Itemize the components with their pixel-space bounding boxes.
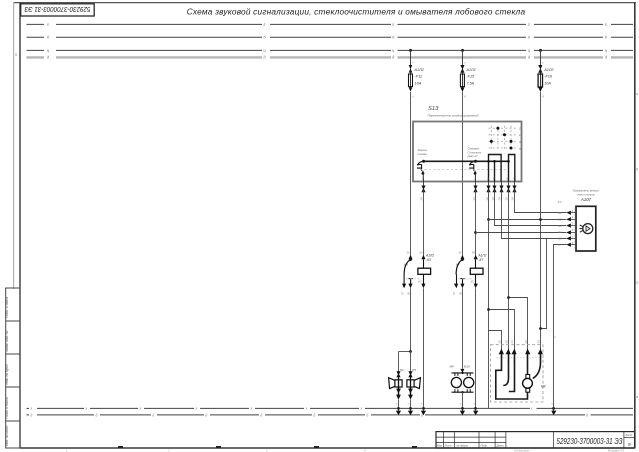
svg-text:Э1: Э1 (558, 230, 562, 234)
svg-text:г: г (47, 23, 49, 27)
svg-text:сигнал: сигнал (418, 152, 428, 156)
svg-text:М10: М10 (464, 364, 470, 368)
svg-text:30: 30 (458, 251, 461, 255)
svg-text:-К7: -К7 (478, 258, 483, 262)
svg-text:2: 2 (571, 215, 574, 219)
svg-text:88: 88 (459, 292, 463, 295)
svg-text:№ докум.: № докум. (457, 443, 469, 447)
svg-text:х: х (85, 407, 88, 411)
svg-text:5: 5 (15, 53, 17, 57)
svg-text:А1Л2: А1Л2 (414, 68, 425, 72)
svg-text:Х7: Х7 (557, 201, 562, 205)
svg-text:х: х (30, 407, 33, 411)
svg-text:(авт-2): (авт-2) (468, 154, 478, 158)
svg-text:-F11: -F11 (415, 75, 423, 79)
svg-text:Подп.: Подп. (481, 443, 488, 447)
svg-text:Дата: Дата (496, 443, 505, 447)
svg-text:-F16: -F16 (544, 75, 553, 79)
svg-text:г: г (605, 23, 607, 27)
svg-text:а: а (636, 395, 638, 399)
svg-text:ц: ц (528, 49, 530, 53)
svg-text:К3: К3 (404, 263, 408, 267)
svg-text:д: д (367, 414, 369, 418)
svg-text:х: х (250, 407, 253, 411)
svg-text:Э4: Э4 (510, 340, 514, 344)
svg-text:-F15: -F15 (466, 75, 475, 79)
svg-text:х: х (139, 407, 142, 411)
svg-text:10А: 10А (415, 81, 422, 85)
svg-text:д: д (586, 414, 588, 418)
svg-text:ц: ц (264, 49, 266, 53)
svg-text:30: 30 (407, 251, 410, 255)
svg-text:Н5: Н5 (412, 368, 416, 372)
svg-text:д: д (31, 414, 33, 418)
svg-text:д: д (314, 414, 316, 418)
svg-text:х: х (305, 407, 308, 411)
svg-text:Э6: Э6 (558, 211, 562, 215)
svg-text:д: д (261, 414, 263, 418)
svg-text:2: 2 (167, 448, 170, 452)
svg-text:S13: S13 (428, 106, 439, 112)
svg-text:М8: М8 (541, 384, 546, 388)
svg-text:г: г (528, 23, 530, 27)
svg-text:-К3: -К3 (426, 258, 431, 262)
svg-text:д: д (153, 414, 155, 418)
svg-text:ц: ц (47, 49, 49, 53)
svg-text:Переключатель комбинированный: Переключатель комбинированный (428, 114, 479, 118)
svg-text:М9: М9 (450, 364, 454, 368)
svg-text:Изм: Изм (437, 443, 442, 447)
svg-text:К7: К7 (456, 263, 460, 267)
svg-text:х: х (195, 407, 198, 411)
svg-text:2: 2 (518, 127, 521, 131)
svg-text:Э2: Э2 (558, 217, 562, 221)
svg-text:г: г (392, 23, 394, 27)
svg-text:Копировал: Копировал (515, 449, 530, 452)
svg-text:А1Л2: А1Л2 (543, 68, 554, 72)
svg-text:ц: ц (605, 49, 607, 53)
svg-text:Э5: Э5 (504, 197, 508, 201)
svg-text:7,5А: 7,5А (466, 81, 474, 85)
svg-text:Э5: Э5 (524, 340, 528, 344)
svg-text:А1Л2: А1Л2 (465, 68, 476, 72)
svg-text:529230-3700003-31 ЭЗ: 529230-3700003-31 ЭЗ (24, 5, 91, 12)
svg-text:10А: 10А (544, 81, 551, 85)
svg-text:85: 85 (471, 280, 474, 284)
svg-text:Взам. инв. №: Взам. инв. № (5, 330, 9, 351)
svg-text:Э4: Э4 (558, 224, 562, 228)
svg-text:А1Л2: А1Л2 (477, 254, 486, 258)
svg-text:б: б (636, 281, 638, 285)
svg-text:х: х (360, 407, 363, 411)
svg-text:Схема звуковой сигнализации, с: Схема звуковой сигнализации, стеклоочист… (187, 7, 526, 17)
svg-text:Э8: Э8 (420, 197, 424, 201)
svg-text:86: 86 (420, 251, 423, 255)
svg-text:85: 85 (418, 280, 421, 284)
svg-text:86: 86 (472, 251, 475, 255)
svg-text:Лист: Лист (624, 433, 633, 437)
svg-text:х: х (530, 407, 533, 411)
svg-text:Э5: Э5 (558, 237, 562, 241)
svg-text:87: 87 (400, 292, 404, 295)
svg-text:д: д (421, 414, 423, 418)
svg-text:А107: А107 (580, 197, 592, 202)
svg-text:в: в (636, 92, 638, 96)
svg-text:д: д (96, 414, 98, 418)
svg-text:Инв. № подл.: Инв. № подл. (5, 425, 9, 446)
svg-text:д: д (605, 56, 607, 60)
svg-text:Э3: Э3 (537, 340, 541, 344)
svg-text:Формат А3: Формат А3 (608, 449, 625, 452)
svg-text:Лист: Лист (443, 443, 452, 447)
svg-text:Э2: Э2 (498, 340, 502, 344)
svg-text:Э6: Э6 (504, 340, 508, 344)
svg-text:529230-3700003-31 ЭЗ: 529230-3700003-31 ЭЗ (557, 437, 623, 446)
svg-text:д: д (528, 56, 530, 60)
svg-text:А1Л2: А1Л2 (425, 254, 434, 258)
svg-text:Подп. и дата: Подп. и дата (5, 397, 9, 418)
svg-text:87: 87 (452, 292, 456, 295)
svg-text:Подп. и дата: Подп. и дата (5, 297, 9, 318)
svg-text:Инв. № дубл.: Инв. № дубл. (5, 364, 9, 385)
svg-text:9: 9 (628, 442, 631, 447)
svg-text:Э4: Э4 (498, 197, 502, 201)
svg-text:ц: ц (636, 167, 638, 171)
svg-text:вого стекла: вого стекла (578, 192, 595, 196)
svg-text:2: 2 (473, 177, 476, 181)
svg-text:д: д (206, 414, 208, 418)
svg-text:д: д (47, 56, 49, 60)
svg-text:г: г (264, 23, 266, 27)
svg-text:ц: ц (392, 49, 394, 53)
svg-text:д: д (264, 56, 266, 60)
svg-text:д: д (392, 56, 394, 60)
